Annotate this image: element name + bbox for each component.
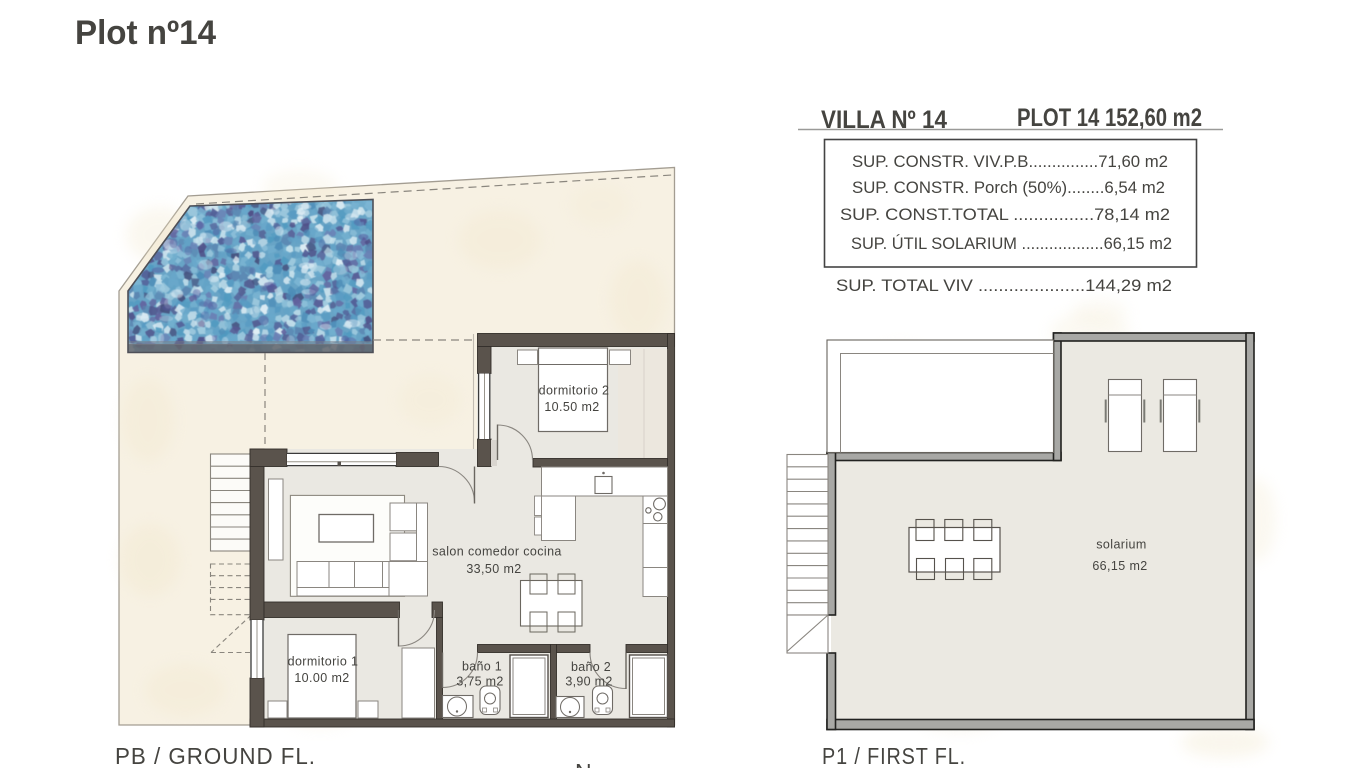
svg-text:P1 / FIRST FL.: P1 / FIRST FL. [822, 743, 966, 768]
svg-text:SUP. CONSTR. Porch (50%)......: SUP. CONSTR. Porch (50%)........6,54 m2 [852, 179, 1165, 197]
svg-text:dormitorio 1: dormitorio 1 [288, 655, 359, 669]
svg-text:3,90 m2: 3,90 m2 [565, 675, 612, 689]
svg-text:dormitorio 2: dormitorio 2 [539, 384, 610, 398]
svg-text:10.00 m2: 10.00 m2 [294, 671, 349, 685]
svg-text:SUP. TOTAL VIV ...............: SUP. TOTAL VIV .....................144,… [836, 277, 1172, 295]
svg-text:PB / GROUND FL.: PB / GROUND FL. [115, 743, 316, 768]
svg-text:SUP. ÚTIL SOLARIUM ...........: SUP. ÚTIL SOLARIUM ..................66,… [851, 234, 1172, 253]
svg-text:3,75 m2: 3,75 m2 [456, 675, 503, 689]
svg-text:baño 2: baño 2 [571, 660, 611, 674]
svg-text:SUP. CONSTR. VIV.P.B..........: SUP. CONSTR. VIV.P.B...............71,60… [852, 153, 1168, 171]
svg-text:33,50 m2: 33,50 m2 [466, 562, 521, 576]
svg-text:solarium: solarium [1096, 538, 1146, 552]
svg-text:66,15 m2: 66,15 m2 [1092, 559, 1147, 573]
svg-text:Plot nº14: Plot nº14 [75, 14, 216, 52]
svg-text:N: N [575, 759, 592, 768]
svg-text:10.50 m2: 10.50 m2 [544, 400, 599, 414]
svg-text:salon comedor cocina: salon comedor cocina [432, 545, 562, 559]
svg-text:PLOT 14 152,60 m2: PLOT 14 152,60 m2 [1017, 104, 1202, 132]
svg-text:baño 1: baño 1 [462, 660, 502, 674]
svg-text:SUP. CONST.TOTAL .............: SUP. CONST.TOTAL ................78,14 m… [840, 206, 1170, 224]
